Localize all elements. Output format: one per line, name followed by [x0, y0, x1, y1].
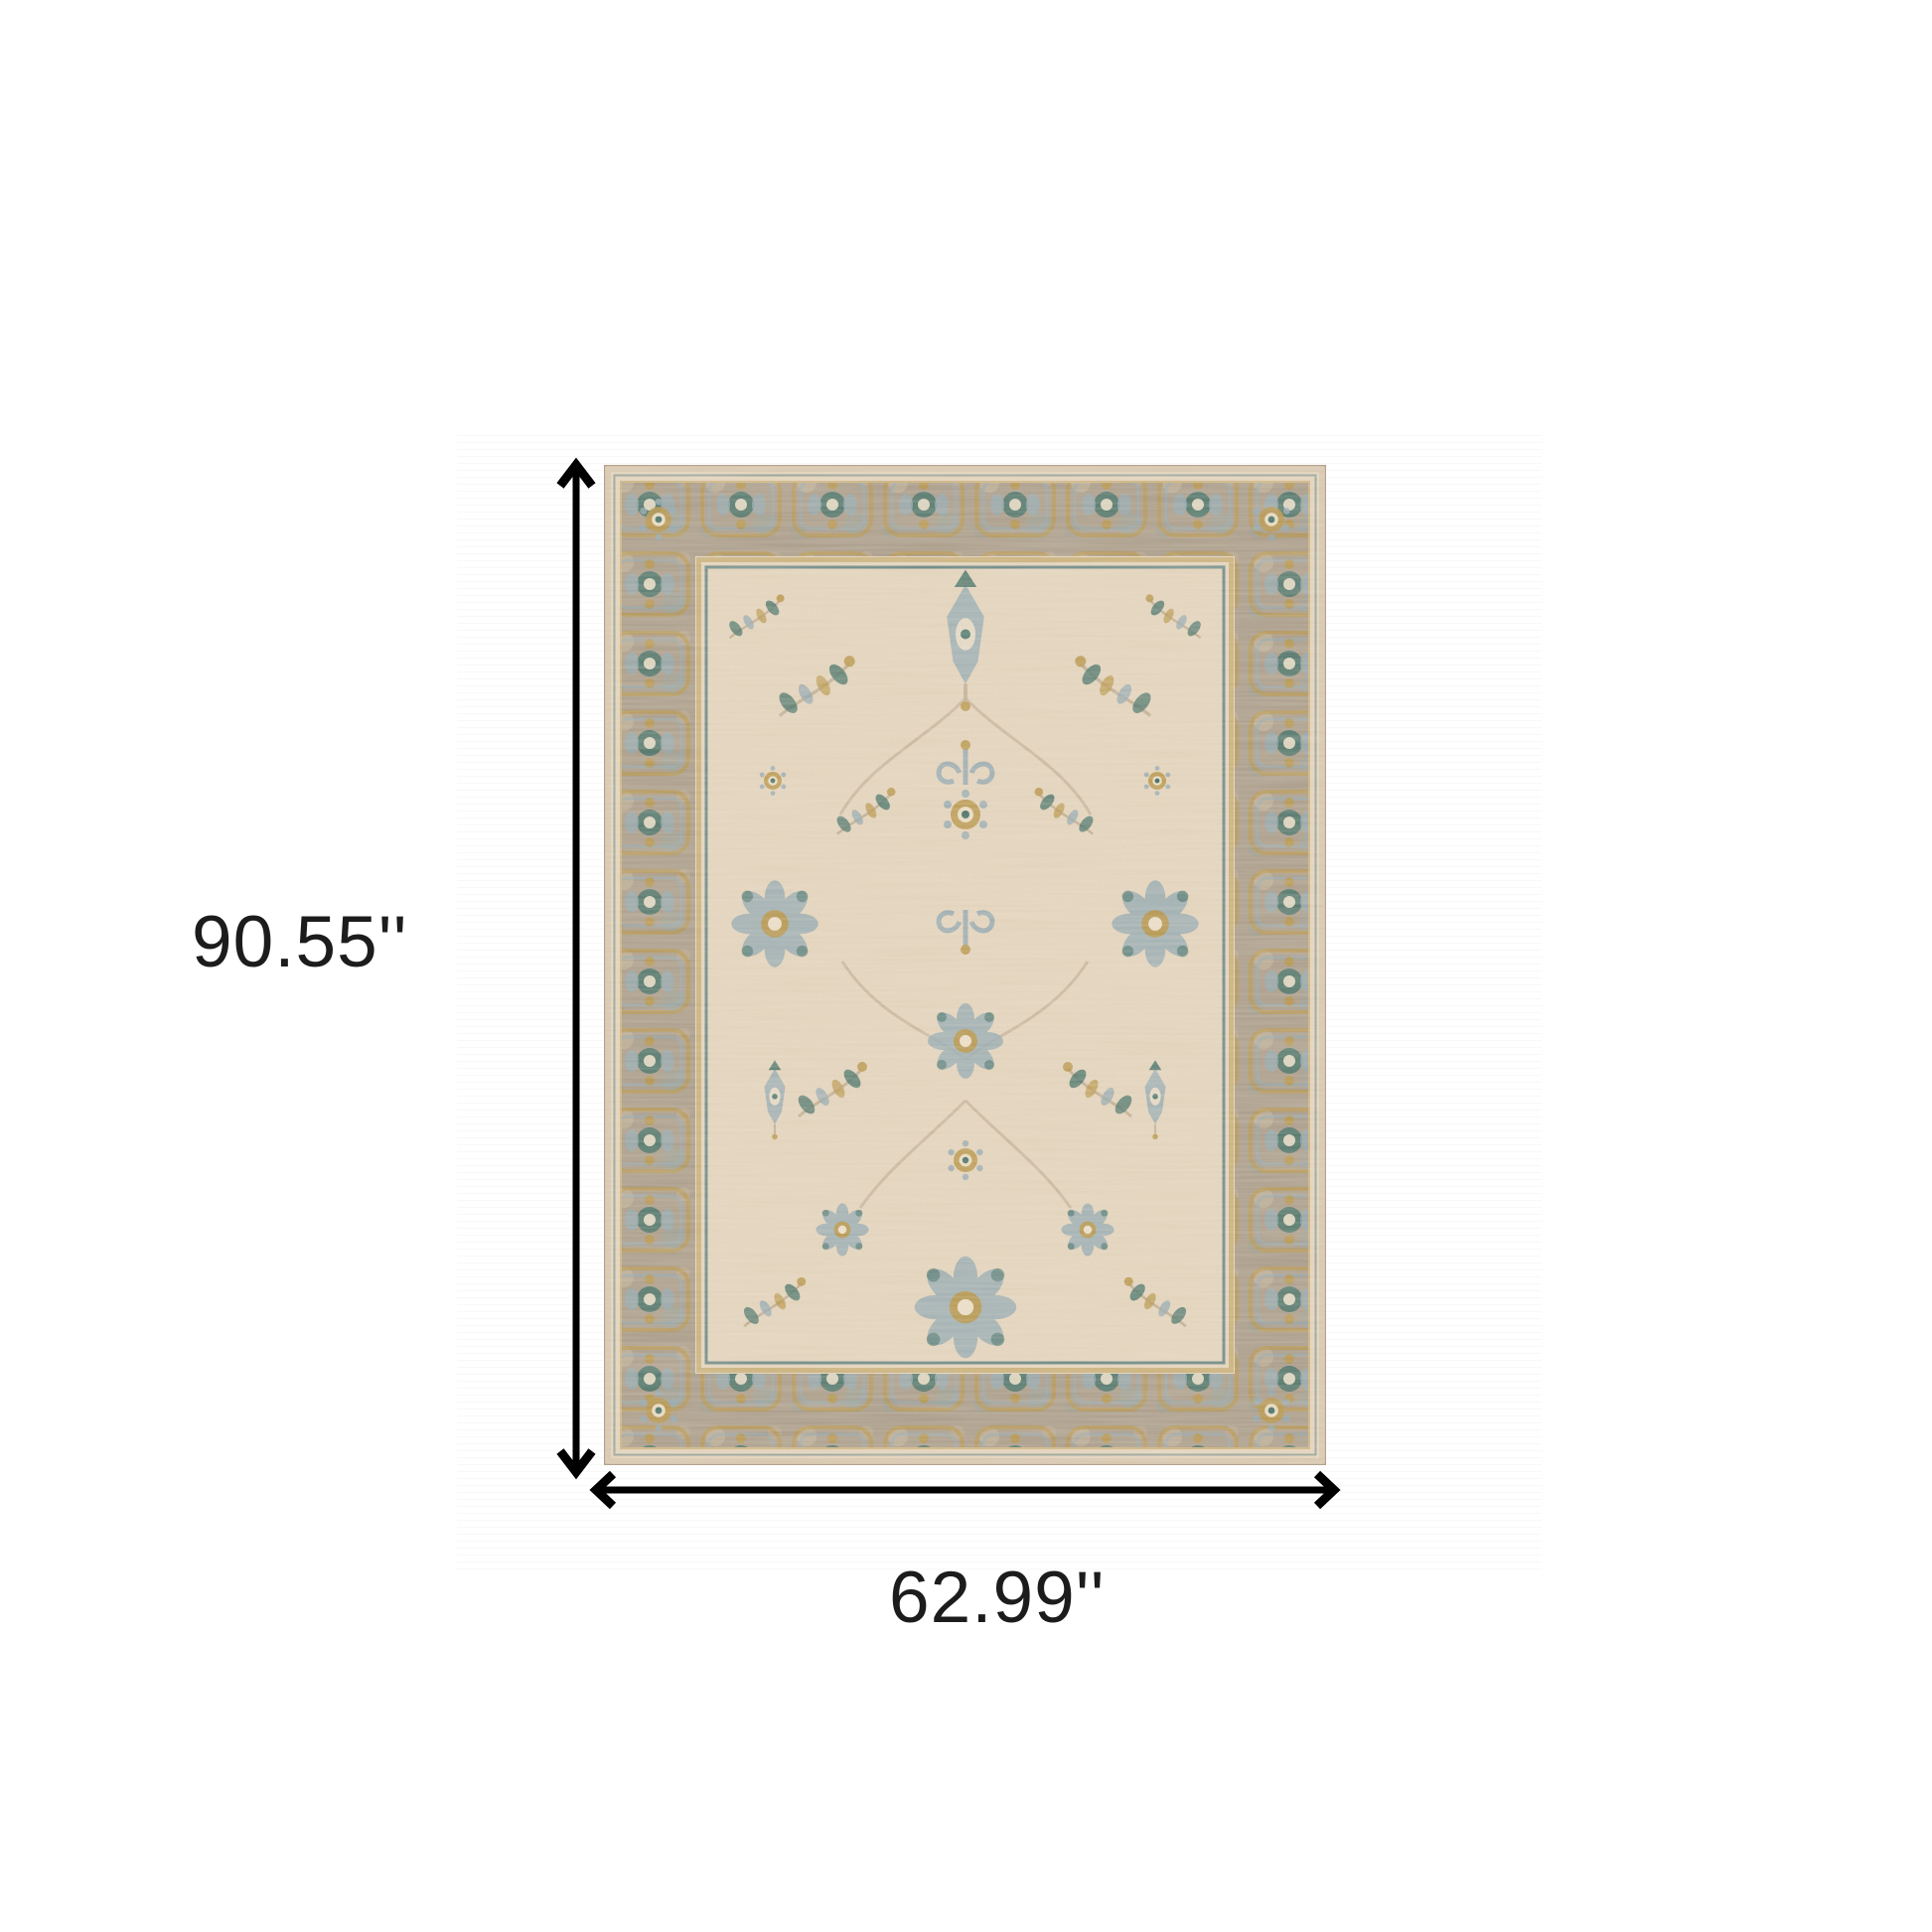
rug-distress-texture [606, 467, 1324, 1463]
width-dimension-label: 62.99'' [889, 1561, 1106, 1634]
rug-photo [604, 465, 1326, 1465]
height-dimension-label: 90.55'' [192, 906, 408, 978]
product-dimension-diagram: 90.55'' 62.99'' [0, 0, 1932, 1932]
